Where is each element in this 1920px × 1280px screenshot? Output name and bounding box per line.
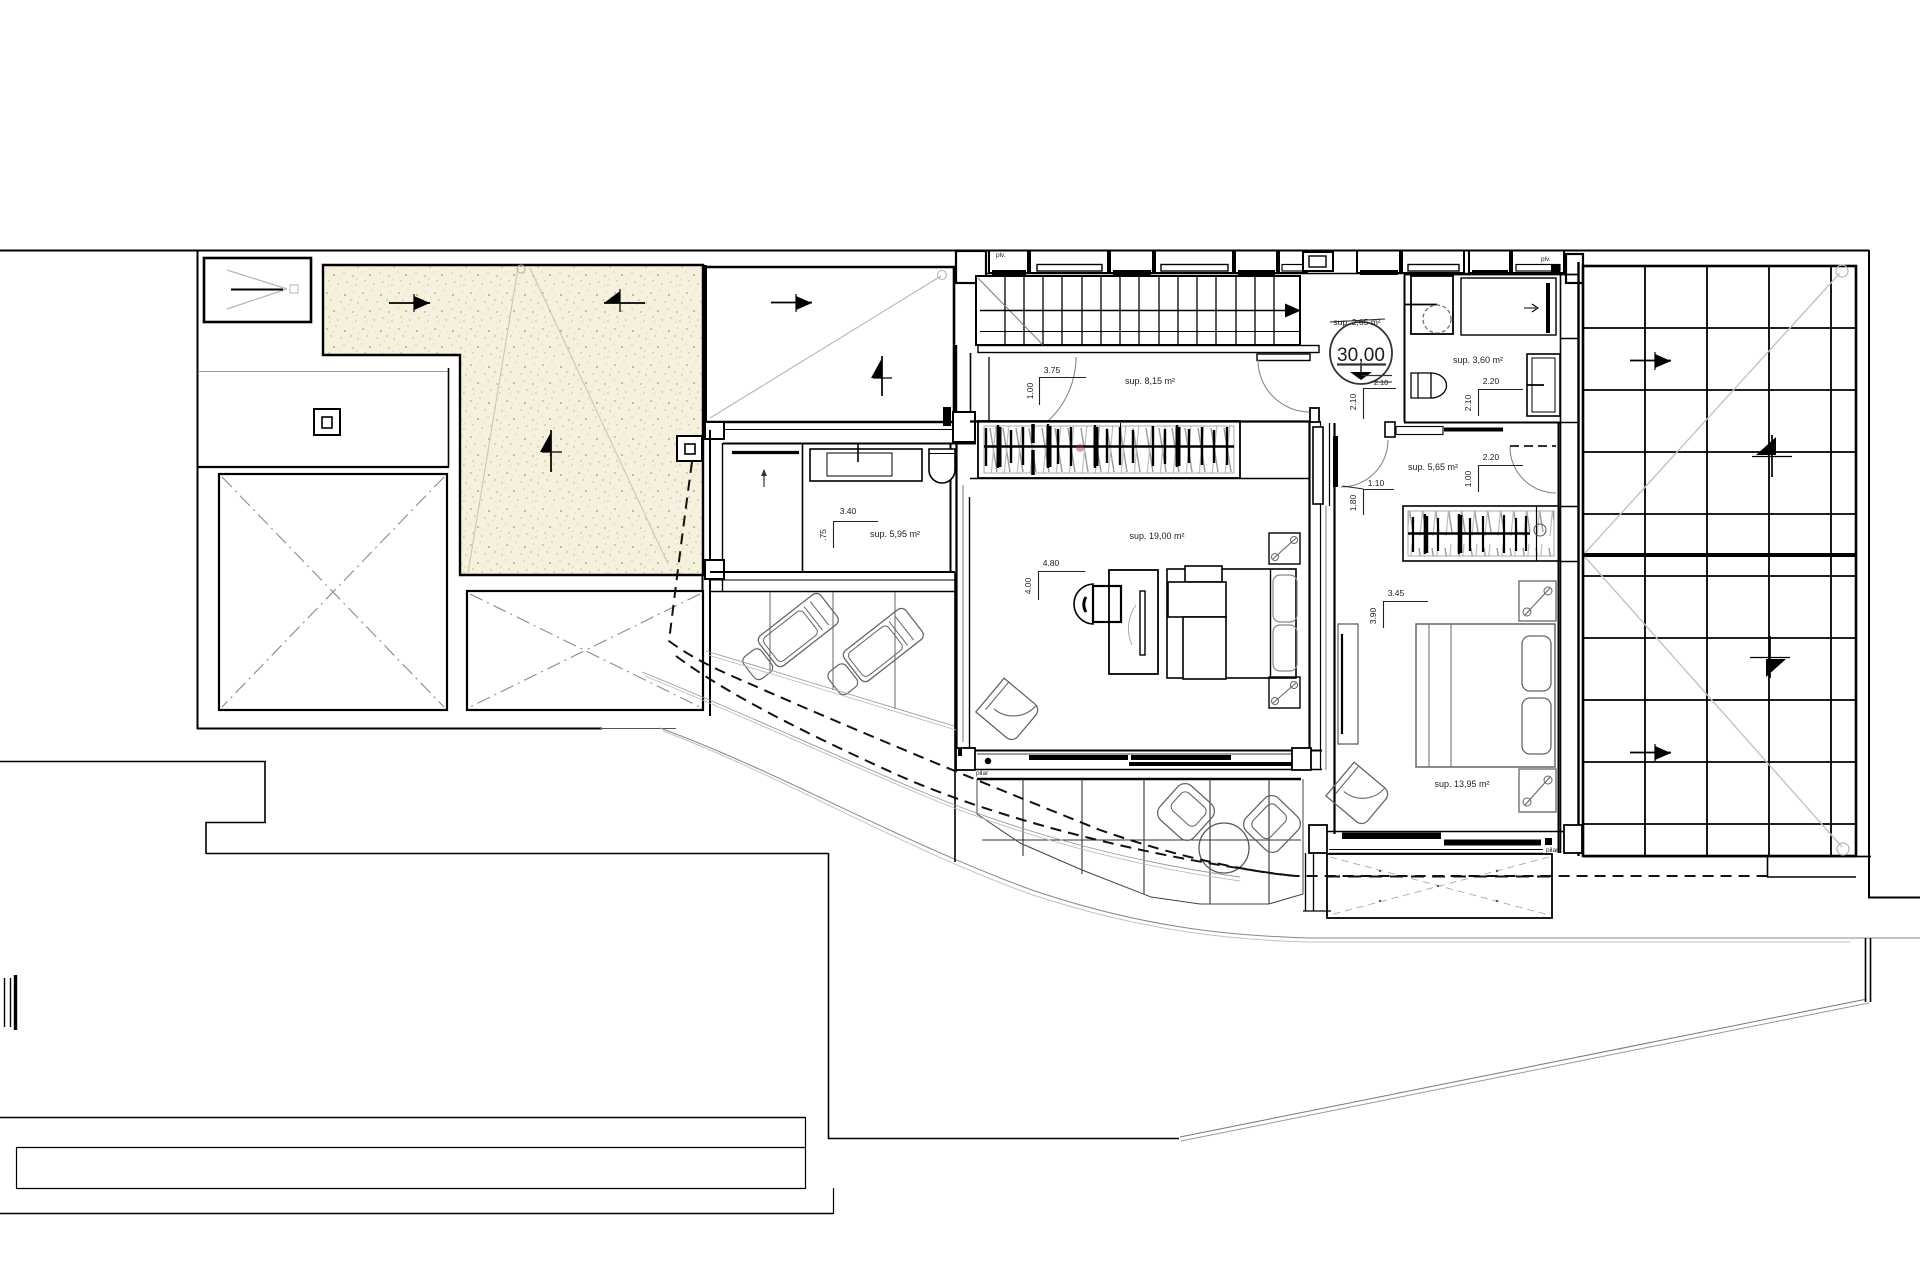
svg-text:sup. 5,65 m²: sup. 5,65 m² <box>1408 462 1458 472</box>
svg-text:sup. 8,15 m²: sup. 8,15 m² <box>1125 376 1175 386</box>
svg-text:1.00: 1.00 <box>1025 382 1035 399</box>
svg-text:sup. 13,95 m²: sup. 13,95 m² <box>1434 779 1489 789</box>
svg-text:30,00: 30,00 <box>1337 345 1385 366</box>
svg-text:.75: .75 <box>818 529 828 541</box>
svg-text:pilar: pilar <box>976 770 989 777</box>
svg-text:4.80: 4.80 <box>1043 558 1060 568</box>
svg-text:2.10: 2.10 <box>1463 394 1473 411</box>
svg-text:plv.: plv. <box>996 252 1006 259</box>
svg-text:2.20: 2.20 <box>1483 452 1500 462</box>
svg-text:pilar: pilar <box>1546 847 1559 854</box>
svg-text:3.75: 3.75 <box>1044 365 1061 375</box>
svg-text:sup. 3,60 m²: sup. 3,60 m² <box>1453 355 1503 365</box>
svg-text:1.80: 1.80 <box>1348 494 1358 511</box>
svg-text:sup. 19,00 m²: sup. 19,00 m² <box>1129 531 1184 541</box>
svg-text:2.10: 2.10 <box>1348 393 1358 410</box>
svg-text:1.00: 1.00 <box>1463 470 1473 487</box>
svg-text:4.00: 4.00 <box>1023 577 1033 594</box>
svg-text:3.90: 3.90 <box>1368 607 1378 624</box>
svg-text:3.45: 3.45 <box>1388 588 1405 598</box>
svg-text:sup. 2,65 m²: sup. 2,65 m² <box>1333 317 1380 327</box>
svg-text:2.10: 2.10 <box>1374 378 1389 387</box>
svg-text:sup. 5,95 m²: sup. 5,95 m² <box>870 529 920 539</box>
svg-text:plv.: plv. <box>1541 256 1551 263</box>
svg-text:1.10: 1.10 <box>1368 478 1385 488</box>
svg-text:2.20: 2.20 <box>1483 376 1500 386</box>
svg-text:3.40: 3.40 <box>840 506 857 516</box>
